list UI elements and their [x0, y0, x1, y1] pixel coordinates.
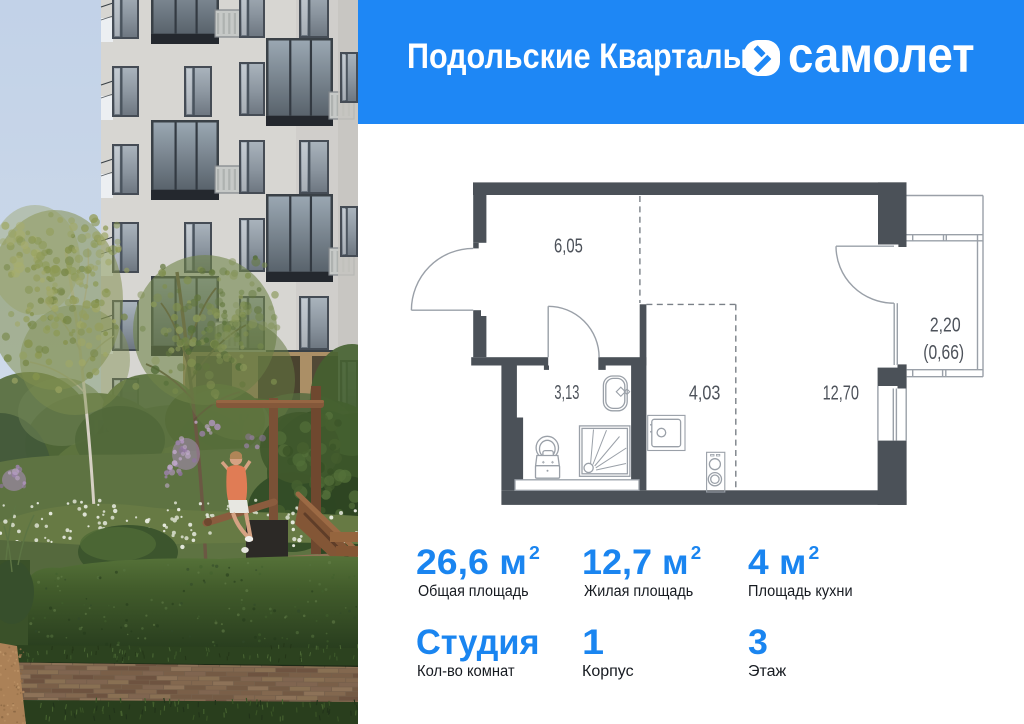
svg-text:(0,66): (0,66)	[923, 341, 964, 364]
svg-text:4,03: 4,03	[689, 382, 721, 405]
svg-text:6,05: 6,05	[554, 235, 583, 258]
svg-text:12,70: 12,70	[823, 381, 859, 404]
svg-text:3,13: 3,13	[554, 381, 579, 404]
svg-text:2,20: 2,20	[930, 314, 961, 337]
